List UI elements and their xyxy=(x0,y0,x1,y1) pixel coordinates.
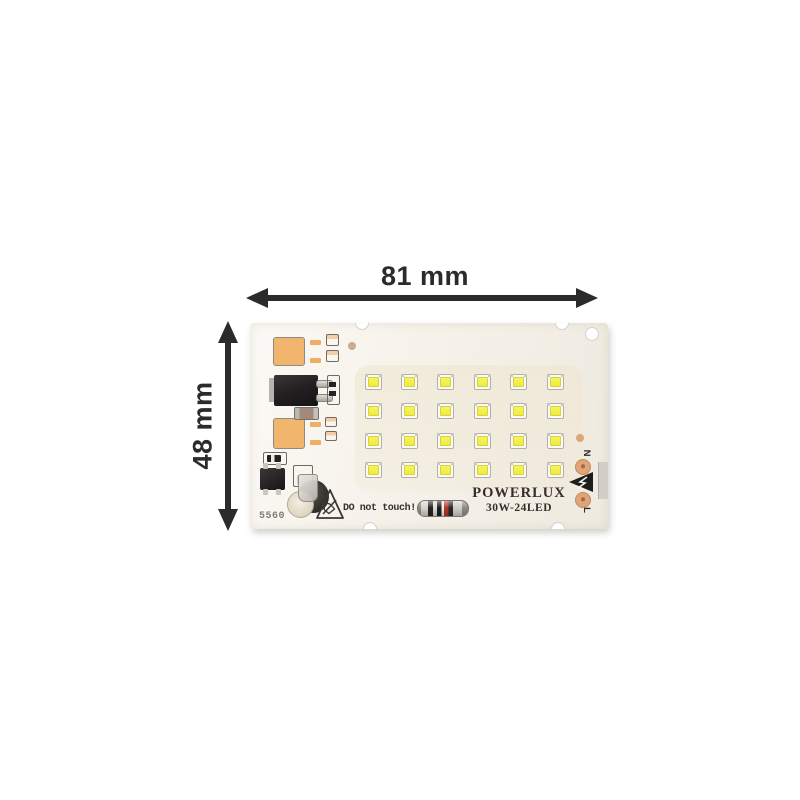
component-footprint xyxy=(325,431,337,441)
led-chip xyxy=(437,462,454,478)
led-die xyxy=(368,377,379,387)
smd-pad xyxy=(310,422,321,427)
live-label: L xyxy=(581,504,593,516)
mounting-notch xyxy=(551,522,565,529)
mounting-hole xyxy=(585,327,599,341)
led-die xyxy=(404,436,415,446)
led-chip xyxy=(437,374,454,390)
ic-leg xyxy=(263,463,268,469)
esd-warning-icon xyxy=(315,488,345,521)
smd-pad xyxy=(310,358,321,363)
right-arrowhead-icon xyxy=(576,288,598,308)
led-die xyxy=(368,465,379,475)
led-chip xyxy=(365,374,382,390)
smd-pad xyxy=(310,340,321,345)
ic-leg xyxy=(263,489,268,495)
led-chip xyxy=(365,462,382,478)
height-dimension-label: 48 mm xyxy=(188,371,219,481)
led-die xyxy=(513,406,524,416)
led-chip xyxy=(365,433,382,449)
led-die xyxy=(440,465,451,475)
led-die xyxy=(550,436,561,446)
neutral-label: N xyxy=(581,447,593,459)
serial-number: 5560 xyxy=(259,511,285,522)
led-chip xyxy=(510,374,527,390)
led-chip xyxy=(547,433,564,449)
led-die xyxy=(477,436,488,446)
component-footprint xyxy=(326,350,339,362)
height-dimension-arrow xyxy=(225,341,231,511)
smd-diode xyxy=(267,455,281,462)
up-arrowhead-icon xyxy=(218,321,238,343)
led-chip xyxy=(437,433,454,449)
led-die xyxy=(440,377,451,387)
led-chip xyxy=(510,433,527,449)
smd-pad xyxy=(310,440,321,445)
model-label: 30W-24LED xyxy=(460,502,578,515)
capacitor-pad xyxy=(273,418,305,449)
down-arrowhead-icon xyxy=(218,509,238,531)
width-dimension-arrow xyxy=(266,295,578,301)
component-footprint xyxy=(326,334,339,346)
led-chip xyxy=(474,462,491,478)
product-photo: 81 mm 48 mm xyxy=(0,0,800,800)
led-die xyxy=(477,377,488,387)
board-edge-connector xyxy=(598,462,608,499)
led-chip xyxy=(401,403,418,419)
brand-label: POWERLUX xyxy=(460,485,578,502)
led-chip xyxy=(474,403,491,419)
brand-triangle-icon xyxy=(568,471,594,493)
led-chip xyxy=(510,403,527,419)
power-transistor xyxy=(274,375,318,406)
brand-block: POWERLUX 30W-24LED xyxy=(460,485,578,515)
led-die xyxy=(550,406,561,416)
capacitor-pad xyxy=(273,337,305,366)
led-die xyxy=(368,406,379,416)
led-die xyxy=(513,436,524,446)
led-chip xyxy=(547,403,564,419)
led-die xyxy=(440,436,451,446)
led-die xyxy=(477,465,488,475)
left-arrowhead-icon xyxy=(246,288,268,308)
led-chip xyxy=(510,462,527,478)
led-die xyxy=(404,406,415,416)
smd-resistor xyxy=(327,375,340,405)
test-via xyxy=(348,342,356,350)
component-footprint xyxy=(325,417,337,427)
mounting-notch xyxy=(363,522,377,529)
led-chip xyxy=(437,403,454,419)
mounting-notch xyxy=(555,323,569,330)
smd-resistor-stripe xyxy=(329,387,336,391)
ic-leg xyxy=(276,463,281,469)
led-chip xyxy=(547,462,564,478)
test-point xyxy=(576,434,584,442)
led-chip xyxy=(401,462,418,478)
led-chip xyxy=(401,433,418,449)
led-module-board: DO not touch! POWERLUX 30W-24LED 5560 N … xyxy=(250,323,608,529)
width-dimension-label: 81 mm xyxy=(350,261,500,292)
led-die xyxy=(404,377,415,387)
led-die xyxy=(550,465,561,475)
led-die xyxy=(513,377,524,387)
led-chip xyxy=(401,374,418,390)
driver-ic xyxy=(260,468,285,490)
led-die xyxy=(368,436,379,446)
led-chip xyxy=(474,374,491,390)
led-die xyxy=(550,377,561,387)
led-chip xyxy=(547,374,564,390)
smd-capacitor xyxy=(294,407,319,420)
led-die xyxy=(477,406,488,416)
ic-leg xyxy=(276,489,281,495)
led-chip xyxy=(365,403,382,419)
mounting-notch xyxy=(355,323,369,330)
led-die xyxy=(440,406,451,416)
led-chip xyxy=(474,433,491,449)
led-die xyxy=(513,465,524,475)
led-die xyxy=(404,465,415,475)
